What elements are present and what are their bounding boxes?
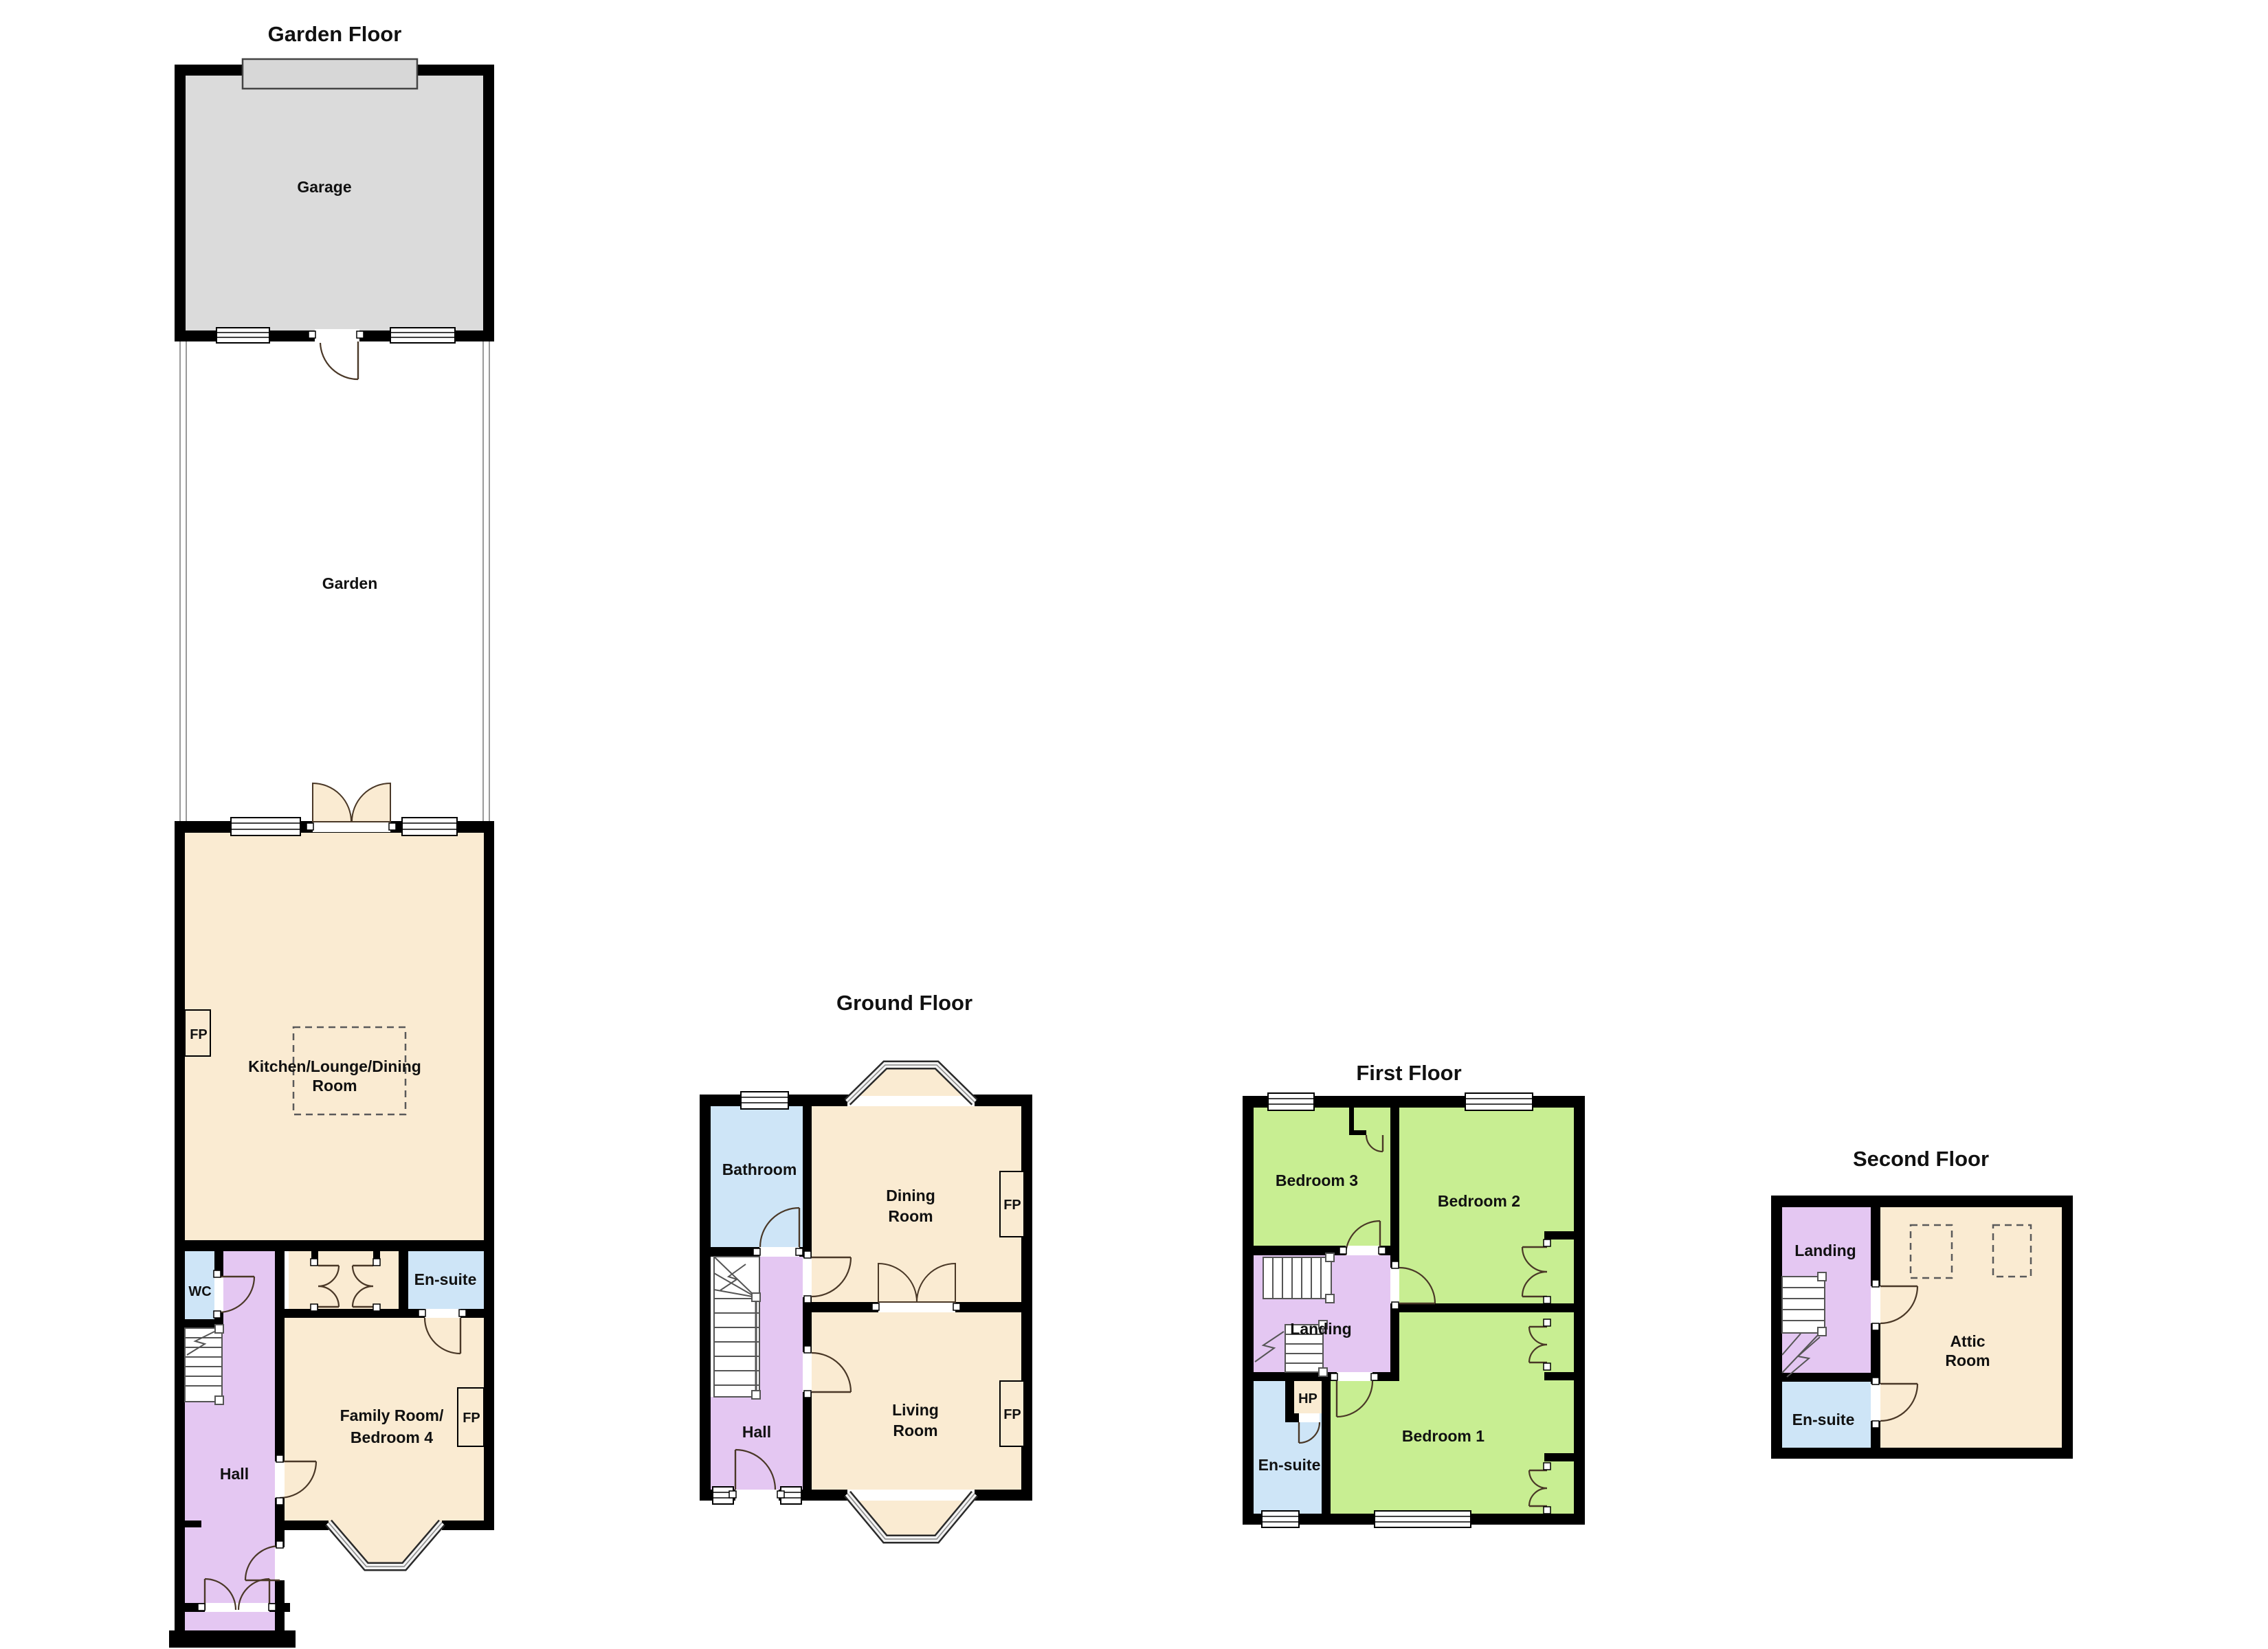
family-door-opening	[275, 1461, 285, 1498]
kitchen-window-right	[402, 818, 457, 835]
door-jamb	[1872, 1421, 1879, 1428]
wall-left	[175, 821, 185, 1648]
garden-floor-plan: Garden Floor Garage Garden	[169, 22, 494, 1648]
bedroom1-door-opening	[1337, 1372, 1372, 1381]
living-fireplace-label: FP	[1003, 1407, 1021, 1422]
door-jamb	[804, 1251, 811, 1258]
door-jamb	[389, 823, 396, 830]
wall-ensuite-right	[1322, 1381, 1331, 1514]
wall-left	[700, 1095, 711, 1501]
door-jamb	[419, 1310, 425, 1316]
wall-right	[484, 821, 494, 1530]
door-jamb	[1331, 1373, 1337, 1380]
dining-fireplace-label: FP	[1003, 1198, 1021, 1213]
wall-bottom	[1771, 1448, 2073, 1459]
door-jamb	[214, 1270, 221, 1277]
family-label-line1: Family Room/	[340, 1406, 444, 1424]
living-label-line2: Room	[893, 1422, 937, 1439]
door-jamb	[459, 1310, 466, 1316]
wall-hp-left	[1285, 1376, 1294, 1422]
door-jamb	[311, 1259, 318, 1266]
door-jamb	[373, 1259, 380, 1266]
bedroom3-window	[1268, 1093, 1314, 1110]
garden-floor-stairs	[185, 1325, 223, 1404]
living-label-line1: Living	[892, 1401, 939, 1419]
door-jamb	[1544, 1239, 1550, 1246]
wall-stub	[1349, 1108, 1354, 1135]
door-jamb	[357, 331, 364, 338]
dining-label-line1: Dining	[886, 1187, 935, 1204]
door-jamb	[872, 1303, 879, 1310]
living-bay-opening	[847, 1490, 975, 1501]
door-jamb	[804, 1391, 811, 1398]
wc-label: WC	[188, 1284, 211, 1299]
kitchen-label-line2: Room	[312, 1077, 357, 1095]
door-jamb	[1544, 1507, 1550, 1514]
door-jamb	[1339, 1247, 1346, 1254]
kitchen-room	[185, 833, 484, 1240]
door-jamb	[1544, 1319, 1550, 1326]
landing-label: Landing	[1290, 1320, 1351, 1338]
garden-french-door-opening	[313, 822, 390, 832]
ensuite-label: En-suite	[1792, 1411, 1855, 1428]
floor-title: First Floor	[1356, 1061, 1461, 1085]
hall-label: Hall	[220, 1465, 249, 1483]
wall-ensuite-left	[399, 1251, 408, 1309]
floor-title: Garden Floor	[268, 22, 402, 46]
door-jamb	[804, 1296, 811, 1303]
wall-closet-stub	[1544, 1231, 1574, 1239]
kitchen-label-line1: Kitchen/Lounge/Dining	[248, 1057, 421, 1075]
floorplan-canvas: Garden Floor Garage Garden	[0, 0, 2268, 1649]
wall-kitchen-bottom	[175, 1240, 494, 1251]
garage-window-right	[390, 328, 455, 343]
ensuite-window	[1262, 1511, 1299, 1527]
side-door-opening	[275, 1547, 285, 1580]
wall-top	[1771, 1196, 2073, 1207]
dining-bay-opening	[847, 1096, 975, 1106]
living-door-opening	[803, 1352, 812, 1392]
door-jamb	[953, 1303, 960, 1310]
door-jamb	[276, 1498, 283, 1505]
bathroom-label: Bathroom	[722, 1160, 797, 1178]
attic-room	[1880, 1207, 2062, 1448]
garage-rear-door-swing	[320, 343, 358, 379]
wall-stub	[185, 1521, 201, 1527]
door-jamb	[309, 331, 315, 338]
landing-label: Landing	[1794, 1242, 1856, 1259]
hp-label: HP	[1298, 1391, 1318, 1406]
bedroom1-window	[1375, 1511, 1471, 1527]
door-jamb	[1872, 1280, 1879, 1287]
bathroom-door-opening	[759, 1247, 799, 1257]
wall-bed2-bed1	[1390, 1303, 1574, 1312]
door-jamb	[311, 1304, 318, 1311]
bedroom3-door-opening	[1346, 1246, 1380, 1255]
family-label-line2: Bedroom 4	[351, 1428, 433, 1446]
wall-hp-bottom	[1294, 1413, 1299, 1422]
door-jamb	[1544, 1297, 1550, 1303]
door-jamb	[276, 1541, 283, 1548]
ground-floor-plan: Ground Floor	[700, 991, 1032, 1539]
garage-door	[243, 59, 417, 89]
ensuite-door-opening	[1871, 1384, 1880, 1421]
kitchen-window-left	[231, 818, 300, 835]
wall-bottom	[169, 1630, 296, 1648]
dining-label-line2: Room	[888, 1207, 933, 1225]
ensuite-door-opening	[425, 1309, 460, 1318]
french-door-opening	[878, 1302, 955, 1312]
porch-door-opening	[205, 1603, 269, 1612]
door-jamb	[214, 1311, 221, 1318]
door-jamb	[729, 1491, 736, 1498]
ensuite-label: En-suite	[1258, 1456, 1321, 1474]
wc-door-opening	[214, 1277, 223, 1312]
garage-room	[186, 76, 483, 330]
floor-title: Ground Floor	[836, 991, 972, 1015]
door-jamb	[796, 1248, 803, 1255]
garden-french-door-left	[313, 783, 351, 822]
wall-closet-stub	[1544, 1372, 1574, 1380]
wall-stub	[1354, 1130, 1366, 1135]
door-jamb	[1544, 1463, 1550, 1470]
first-floor-plan: First Floor	[1243, 1061, 1585, 1527]
hp-door-opening	[1299, 1413, 1320, 1422]
door-jamb	[1872, 1323, 1879, 1330]
bathroom-window	[741, 1092, 788, 1109]
family-fireplace-label: FP	[463, 1411, 480, 1426]
attic-label-line2: Room	[1945, 1351, 1990, 1369]
door-jamb	[1392, 1302, 1399, 1309]
door-jamb	[804, 1346, 811, 1353]
attic-door-opening	[1871, 1286, 1880, 1323]
kitchen-fireplace-label: FP	[190, 1027, 208, 1042]
ground-floor-stairs	[714, 1257, 760, 1399]
wall-bed3-bed2	[1390, 1108, 1399, 1381]
door-jamb	[373, 1304, 380, 1311]
wall-left	[1243, 1096, 1254, 1525]
door-jamb	[1872, 1378, 1879, 1384]
vestibule-room	[289, 1251, 408, 1309]
bedroom2-window	[1465, 1093, 1533, 1110]
door-jamb	[1371, 1373, 1378, 1380]
wall-closet-stub	[1544, 1453, 1574, 1461]
wall-family-bottom-right	[442, 1521, 494, 1530]
bedroom1-label: Bedroom 1	[1402, 1427, 1485, 1445]
wall-right	[1574, 1096, 1585, 1525]
bedroom2-door-opening	[1390, 1268, 1399, 1303]
second-floor-plan: Second Floor	[1771, 1147, 2073, 1459]
garage-label: Garage	[297, 178, 351, 196]
hall-label: Hall	[742, 1423, 771, 1441]
dining-door-opening	[803, 1257, 812, 1297]
front-door-opening	[735, 1490, 779, 1501]
bedroom2-label: Bedroom 2	[1438, 1192, 1520, 1210]
door-jamb	[1544, 1363, 1550, 1370]
door-jamb	[198, 1604, 205, 1611]
door-jamb	[777, 1491, 784, 1498]
garage-rear-door-opening	[315, 329, 359, 343]
door-jamb	[753, 1248, 760, 1255]
ensuite-label: En-suite	[414, 1270, 477, 1288]
door-jamb	[1392, 1261, 1399, 1268]
garden-label: Garden	[322, 574, 378, 592]
door-jamb	[269, 1604, 276, 1611]
door-jamb	[276, 1455, 283, 1462]
door-jamb	[1379, 1247, 1386, 1254]
floor-title: Second Floor	[1853, 1147, 1989, 1171]
bedroom3-label: Bedroom 3	[1276, 1171, 1358, 1189]
door-jamb	[307, 823, 313, 830]
garden-french-door-right	[352, 783, 390, 822]
wall-family-bottom-left	[285, 1521, 329, 1530]
attic-label-line1: Attic	[1950, 1332, 1985, 1350]
wall-landing-ensuite	[1782, 1373, 1871, 1382]
wall-right	[2062, 1196, 2073, 1459]
wall-left	[1771, 1196, 1782, 1459]
garage-window-left	[216, 328, 269, 343]
